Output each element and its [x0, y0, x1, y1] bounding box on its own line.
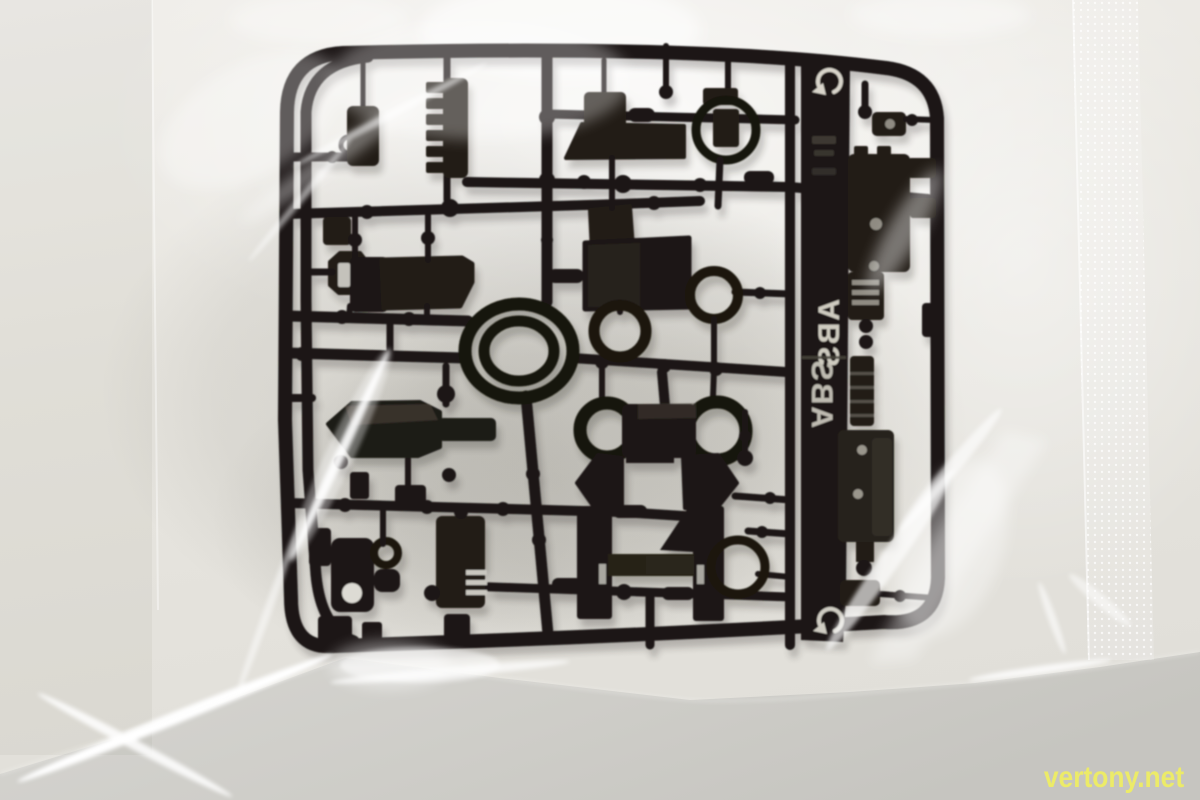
svg-text:vertony.net: vertony.net [1044, 759, 1185, 793]
